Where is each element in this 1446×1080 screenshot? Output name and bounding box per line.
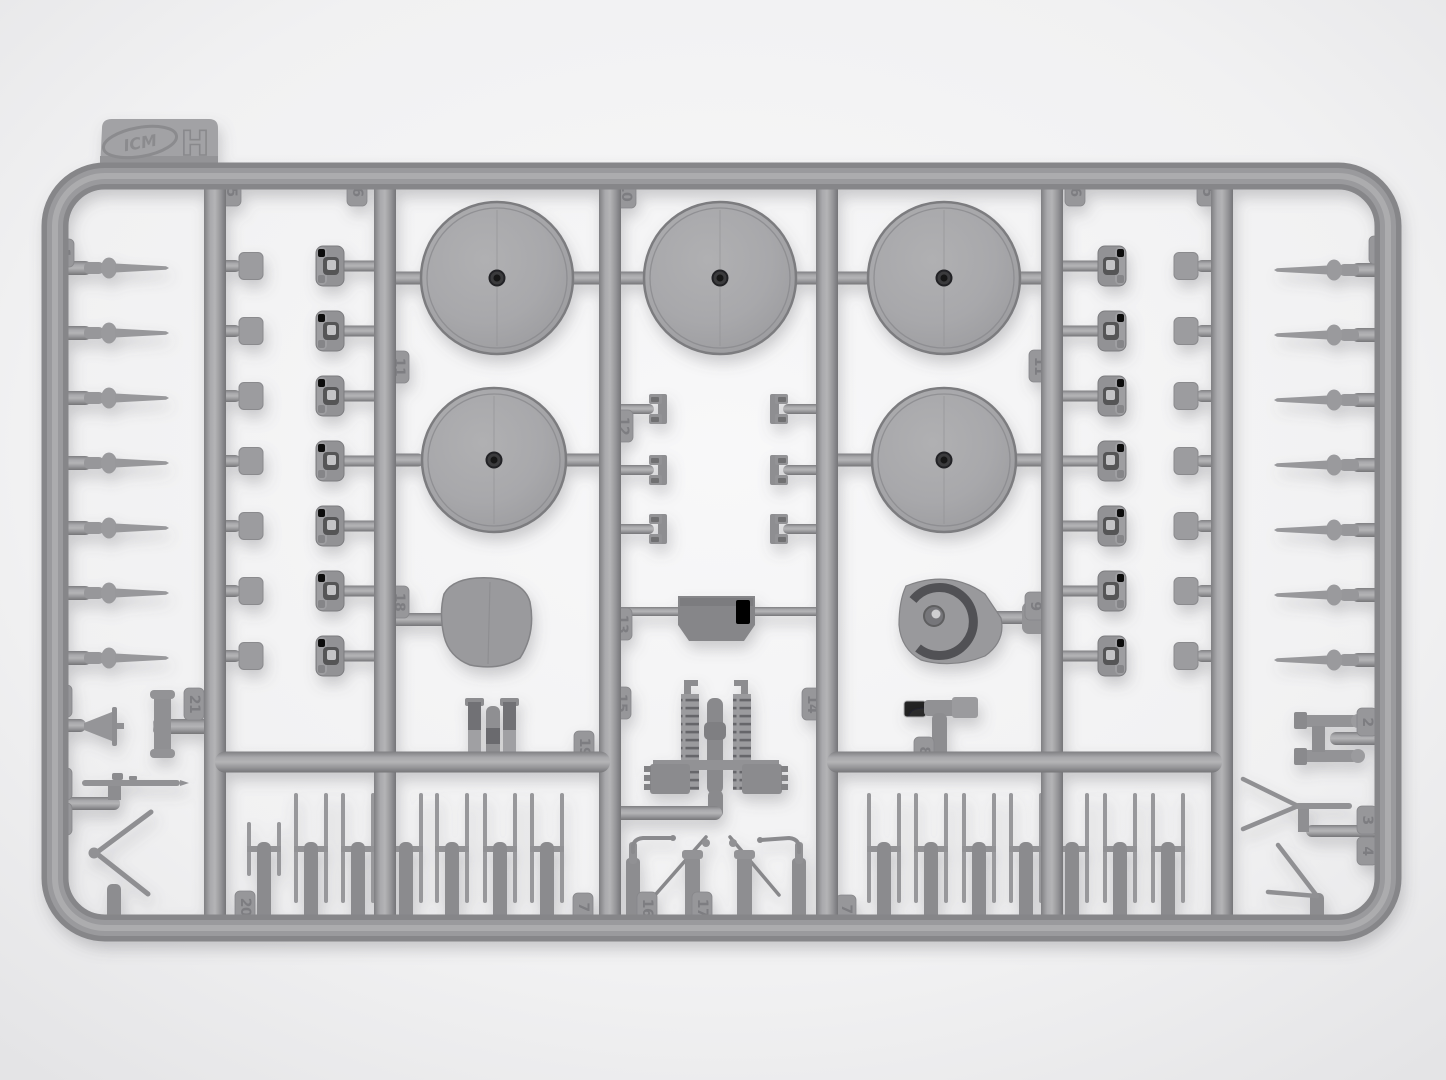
tab-label: 7	[575, 902, 591, 911]
tab-label: 3	[1359, 815, 1375, 824]
tab-21: 21	[184, 688, 204, 720]
sprue-tag: ICM H	[100, 119, 218, 170]
tab-3: 3	[1357, 806, 1377, 834]
runner-vertical-4	[599, 168, 621, 936]
wheel-disc-3	[644, 202, 796, 354]
runner-vertical-7	[1211, 168, 1233, 936]
sprue-photo: ICM H	[0, 0, 1446, 1080]
tab-label: 20	[237, 898, 253, 917]
runner-vertical-3	[374, 168, 396, 936]
runner-mid-right	[827, 752, 1222, 773]
tab-label: 9	[1027, 601, 1043, 610]
tab-label: 17	[694, 899, 710, 917]
runner-vertical-5	[816, 168, 838, 936]
tab-label: 4	[1359, 846, 1375, 856]
wheel-disc-5	[872, 388, 1016, 532]
wheel-disc-4	[868, 202, 1020, 354]
runner-vertical-2	[204, 168, 226, 936]
tab-label: 16	[639, 899, 655, 917]
tab-4: 4	[1357, 837, 1377, 865]
engine-shaft	[707, 698, 723, 794]
wheel-disc-1	[421, 202, 573, 354]
tab-label: 21	[186, 695, 202, 713]
tab-label: 7	[838, 904, 854, 913]
tab-label: 2	[1359, 717, 1375, 726]
wheel-disc-2	[422, 388, 566, 532]
tab-2: 2	[1357, 708, 1377, 736]
sprue-letter: H	[181, 124, 209, 164]
runner-vertical-6	[1041, 168, 1063, 936]
runner-mid-left	[215, 752, 610, 773]
